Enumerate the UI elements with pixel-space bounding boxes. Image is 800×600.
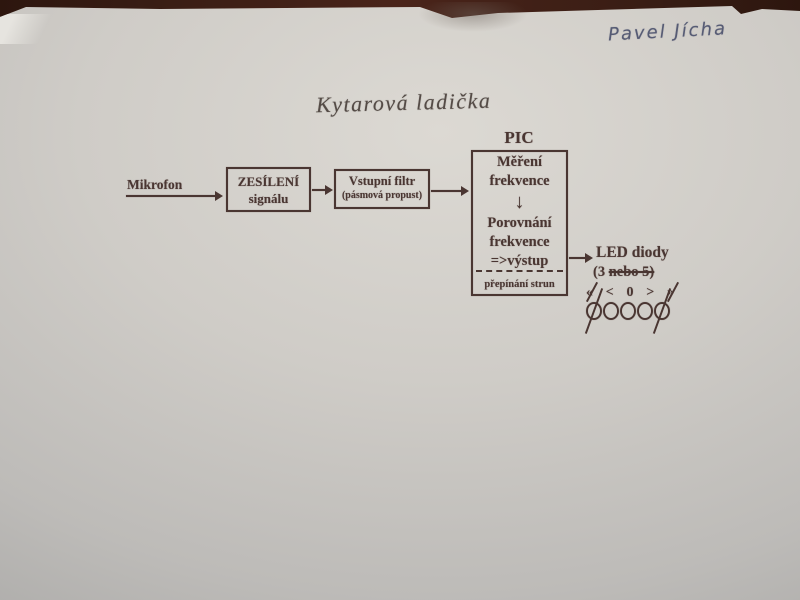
pic-porovnani-line2: frekvence (473, 233, 566, 252)
pic-porovnani-line1: Porovnání (473, 214, 566, 233)
arrow-mikrofon-to-zesileni (126, 195, 216, 197)
led-symbol-1: < (606, 285, 614, 301)
led-symbol-2: 0 (626, 285, 633, 301)
arrow-zesileni-to-filtr (312, 189, 326, 191)
filtr-line2: (pásmová propust) (336, 189, 428, 202)
pic-label: PIC (471, 128, 567, 148)
led-circle-0 (586, 302, 602, 320)
led-circle-4 (654, 302, 670, 320)
pic-mereni-line1: Měření (473, 153, 566, 172)
block-pic: Měření frekvence ↓ Porovnání frekvence =… (471, 150, 568, 296)
led-diody-label: LED diody (596, 244, 669, 262)
mikrofon-label: Mikrofon (127, 177, 182, 193)
block-vstupni-filtr: Vstupní filtr (pásmová propust) (334, 169, 430, 209)
led-circle-1 (603, 302, 619, 320)
filtr-line1: Vstupní filtr (336, 174, 428, 189)
led-circle-2 (620, 302, 636, 320)
led-count-prefix: (3 (593, 264, 609, 280)
zesileni-line2: signálu (228, 190, 309, 207)
photo-of-paper: Pavel Jícha Kytarová ladička Mikrofon ZE… (0, 0, 800, 600)
led-circles-row (586, 302, 671, 320)
pic-porovnani-line3: =>výstup (473, 252, 566, 271)
led-symbol-3: > (646, 285, 654, 301)
block-zesileni-signalu: ZESÍLENÍ signálu (226, 167, 311, 212)
zesileni-line1: ZESÍLENÍ (228, 173, 309, 190)
led-count-label: (3 nebo 5) (593, 264, 654, 281)
led-symbol-0: « (586, 285, 593, 301)
down-arrow-icon: ↓ (473, 191, 566, 214)
pic-footer-label: přepínání strun (473, 278, 566, 291)
arrow-filtr-to-pic (431, 190, 462, 192)
paper-edge-shadow (418, 2, 528, 32)
page-title: Kytarová ladička (316, 88, 492, 119)
pic-mereni-line2: frekvence (473, 172, 566, 191)
pic-dashed-divider (476, 270, 563, 272)
led-circle-3 (637, 302, 653, 320)
led-count-struck-text: nebo 5) (609, 264, 655, 280)
arrow-pic-to-led (569, 257, 586, 259)
paper-fold-highlight (0, 14, 60, 44)
